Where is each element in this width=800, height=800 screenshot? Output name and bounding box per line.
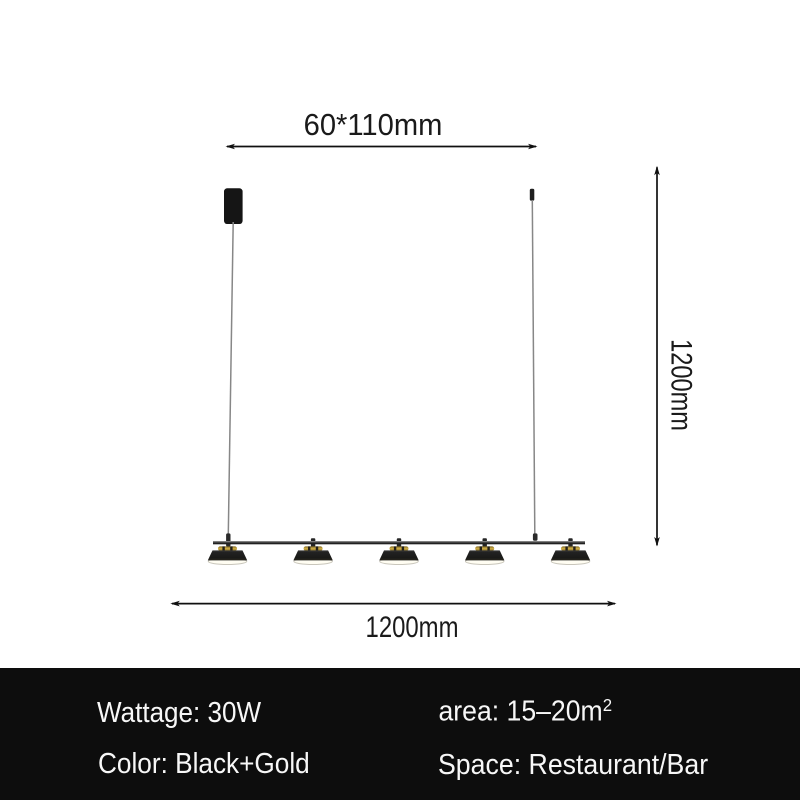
svg-text:1200mm: 1200mm (665, 339, 698, 431)
svg-text:Color: Black+Gold: Color: Black+Gold (98, 747, 310, 779)
svg-text:1200mm: 1200mm (366, 611, 459, 644)
svg-text:Wattage: 30W: Wattage: 30W (97, 696, 261, 728)
svg-text:area: 15–20m2: area: 15–20m2 (439, 694, 613, 726)
svg-text:60*110mm: 60*110mm (304, 108, 443, 142)
svg-text:Space: Restaurant/Bar: Space: Restaurant/Bar (438, 748, 708, 780)
